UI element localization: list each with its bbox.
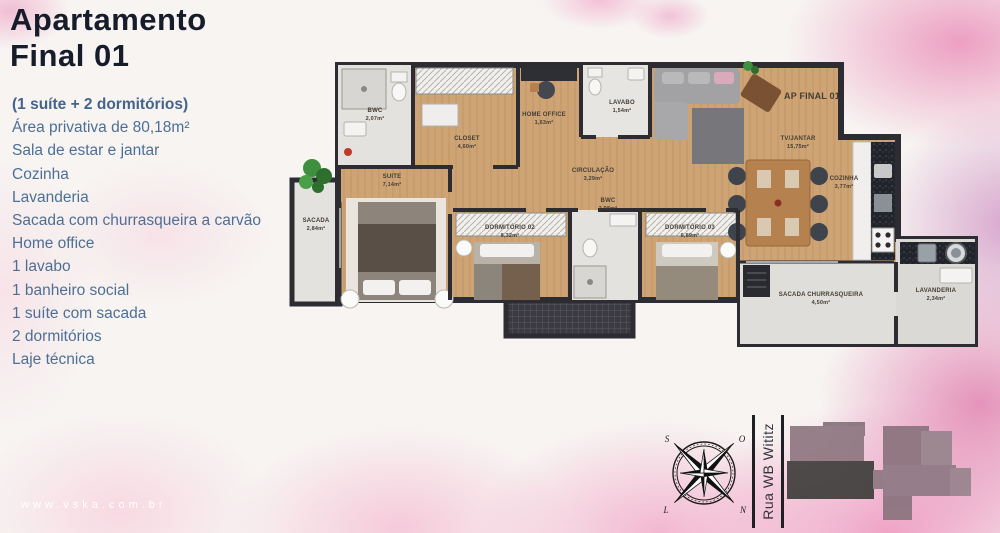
closet-dresser (422, 104, 458, 126)
churrasqueira-grill (743, 265, 770, 297)
highlighted-unit-block (787, 461, 874, 499)
plan-room-area: 8,32m² (501, 232, 520, 239)
plan-room-area: 2,07m² (366, 115, 385, 122)
plan-room-area: 6,89m² (681, 232, 700, 239)
brochure-background: Apartamento Final 01 (1 suíte + 2 dormit… (0, 0, 1000, 533)
compass-letter-west: O (739, 434, 746, 444)
plan-room-area: 3,29m² (584, 175, 603, 182)
plan-room-area: 1,54m² (613, 107, 632, 114)
plan-room-area: 15,75m² (787, 143, 809, 150)
feature-item: Home office (12, 232, 261, 255)
feature-item: Cozinha (12, 163, 261, 186)
dining-table (728, 160, 828, 246)
plan-balcony-suite (292, 180, 340, 304)
feature-item: Sala de estar e jantar (12, 139, 261, 162)
building-silhouette (782, 418, 987, 526)
street-sign: Rua WB Wititz (752, 415, 784, 528)
plan-room-area: 4,50m² (812, 299, 831, 306)
plan-room-label: DORMITÓRIO 03 (665, 223, 715, 231)
plan-room-label: LAVABO (609, 100, 635, 106)
compass-icon: S O L N (656, 421, 752, 525)
compass-letter-north: N (739, 505, 747, 515)
compass-letter-east: L (662, 505, 668, 515)
plan-room-label: HOME OFFICE (522, 112, 566, 118)
plan-room-area: 7,14m² (383, 181, 402, 188)
compass-letter-south: S (665, 434, 670, 444)
plan-room-area: 1,63m² (535, 119, 554, 126)
plan-room-area: 2,98m² (599, 205, 618, 212)
floor-plan: BWC 2,07m² SACADA 2,84m² SUITE 7,14m² CL… (278, 52, 980, 349)
page-title: Apartamento Final 01 (10, 2, 207, 74)
plan-room-label: TV/JANTAR (780, 136, 815, 142)
plan-room-area: 2,84m² (307, 225, 326, 232)
feature-item: Sacada com churrasqueira a carvão (12, 209, 261, 232)
plan-room-label: BWC (368, 108, 383, 114)
feature-item: 1 banheiro social (12, 279, 261, 302)
plan-room-label: CIRCULAÇÃO (572, 167, 614, 174)
plan-room-label: SACADA (303, 218, 330, 224)
plan-room-label: CLOSET (454, 136, 480, 142)
website-url: www.vska.com.br (21, 499, 167, 511)
feature-item: 1 suíte com sacada (12, 302, 261, 325)
plan-room-label: COZINHA (830, 176, 859, 182)
page-title-line1: Apartamento (10, 2, 207, 38)
plan-room-area: 3,77m² (835, 183, 854, 190)
feature-item: Laje técnica (12, 348, 261, 371)
plan-room-label: DORMITÓRIO 02 (485, 223, 535, 231)
wardrobe-closet (416, 68, 513, 94)
feature-item: 2 dormitórios (12, 325, 261, 348)
plan-room-area: 4,60m² (458, 143, 477, 150)
kitchen-counter (853, 142, 895, 260)
street-name: Rua WB Wititz (760, 423, 776, 520)
plan-room-label: SUITE (383, 174, 402, 180)
features-heading: (1 suíte + 2 dormitórios) (12, 93, 261, 116)
plan-room-label: LAVANDERIA (916, 288, 957, 294)
features-list: (1 suíte + 2 dormitórios) Área privativa… (12, 93, 261, 371)
plan-laje-tecnica (506, 300, 633, 336)
feature-item: 1 lavabo (12, 255, 261, 278)
plan-room-area: 2,34m² (927, 295, 946, 302)
plan-room-label: BWC (601, 198, 616, 204)
unit-label: AP FINAL 01 (784, 91, 840, 101)
suite-bed (341, 198, 453, 308)
feature-item: Lavanderia (12, 186, 261, 209)
page-title-line2: Final 01 (10, 38, 207, 74)
plan-room-label: SACADA CHURRASQUEIRA (779, 292, 864, 298)
feature-item: Área privativa de 80,18m² (12, 116, 261, 139)
